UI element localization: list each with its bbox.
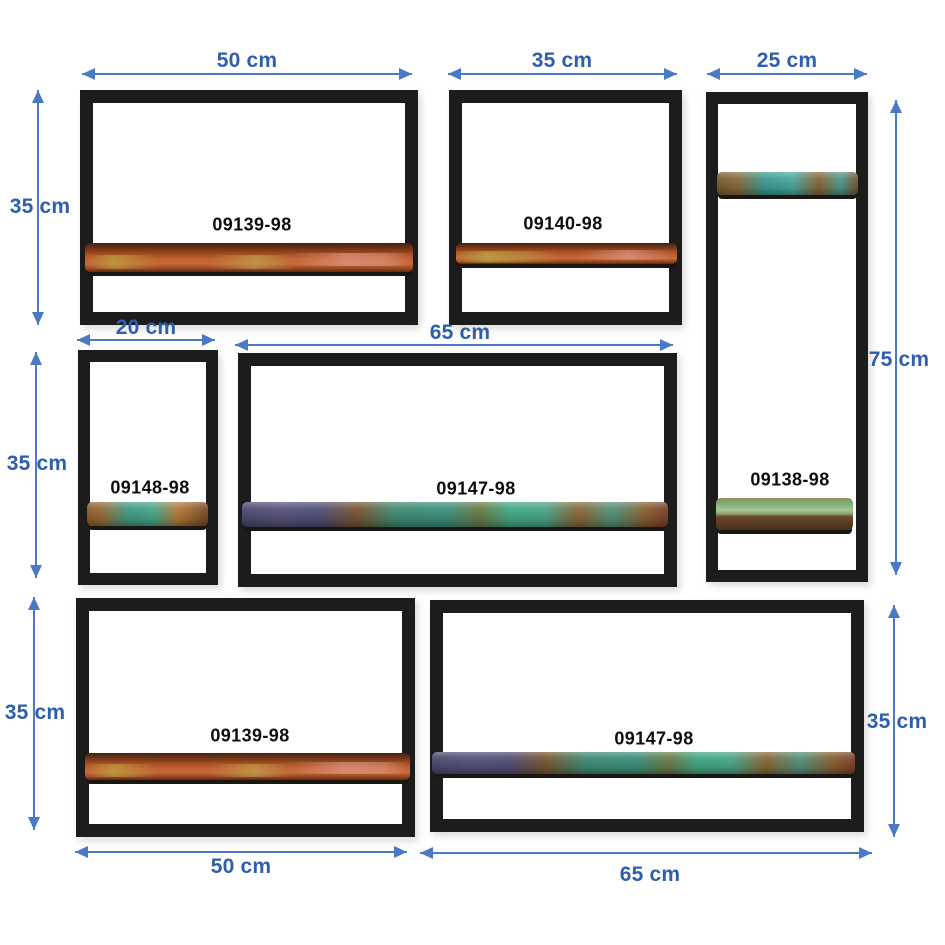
wood-plank-tall-lower: [716, 498, 853, 530]
dim-label-bottom-65cm: 65 cm: [620, 863, 681, 887]
shelf-frame-bottom-left: [76, 598, 415, 837]
wood-plank-bottom-left: [85, 753, 410, 780]
product-code-top-center: 09140-98: [523, 214, 602, 235]
dim-arrow-bottom-65cm: [420, 852, 872, 854]
dim-label-right-75cm: 75 cm: [869, 348, 930, 372]
product-code-top-right-tall: 09138-98: [750, 470, 829, 491]
wood-plank-top-center: [456, 243, 677, 264]
wood-plank-tall-upper: [717, 172, 858, 195]
product-code-top-left: 09139-98: [212, 215, 291, 236]
shelf-frame-middle-center: [238, 353, 677, 587]
shelf-frame-top-center: [449, 90, 682, 325]
dim-label-mid-20cm: 20 cm: [116, 316, 177, 340]
product-code-bottom-right: 09147-98: [614, 729, 693, 750]
wood-plank-middle-center: [242, 502, 668, 527]
dim-label-top-25cm: 25 cm: [757, 49, 818, 73]
dim-arrow-bottom-50cm: [75, 851, 407, 853]
product-code-middle-center: 09147-98: [436, 479, 515, 500]
dim-label-left-row1-35cm: 35 cm: [10, 195, 71, 219]
dim-arrow-top-50cm: [82, 73, 412, 75]
shelf-frame-bottom-right: [430, 600, 864, 832]
dim-label-right-35cm: 35 cm: [867, 710, 928, 734]
shelf-frame-top-left: [80, 90, 418, 325]
dim-arrow-top-35cm: [448, 73, 677, 75]
product-code-bottom-left: 09139-98: [210, 726, 289, 747]
wood-plank-top-left: [85, 243, 413, 272]
dim-label-bottom-50cm: 50 cm: [211, 855, 272, 879]
product-dimension-diagram: 50 cm 35 cm 25 cm 35 cm 35 cm 35 cm 75 c…: [0, 0, 945, 945]
dim-label-left-row3-35cm: 35 cm: [5, 701, 66, 725]
shelf-frame-middle-left: [78, 350, 218, 585]
dim-arrow-top-25cm: [707, 73, 867, 75]
dim-label-left-row2-35cm: 35 cm: [7, 452, 68, 476]
dim-label-top-35cm: 35 cm: [532, 49, 593, 73]
dim-label-top-50cm: 50 cm: [217, 49, 278, 73]
wood-plank-middle-left: [87, 502, 208, 526]
dim-label-mid-65cm: 65 cm: [430, 321, 491, 345]
dim-arrow-right-75cm: [895, 100, 897, 575]
wood-plank-bottom-right: [432, 752, 855, 774]
product-code-middle-left: 09148-98: [110, 478, 189, 499]
